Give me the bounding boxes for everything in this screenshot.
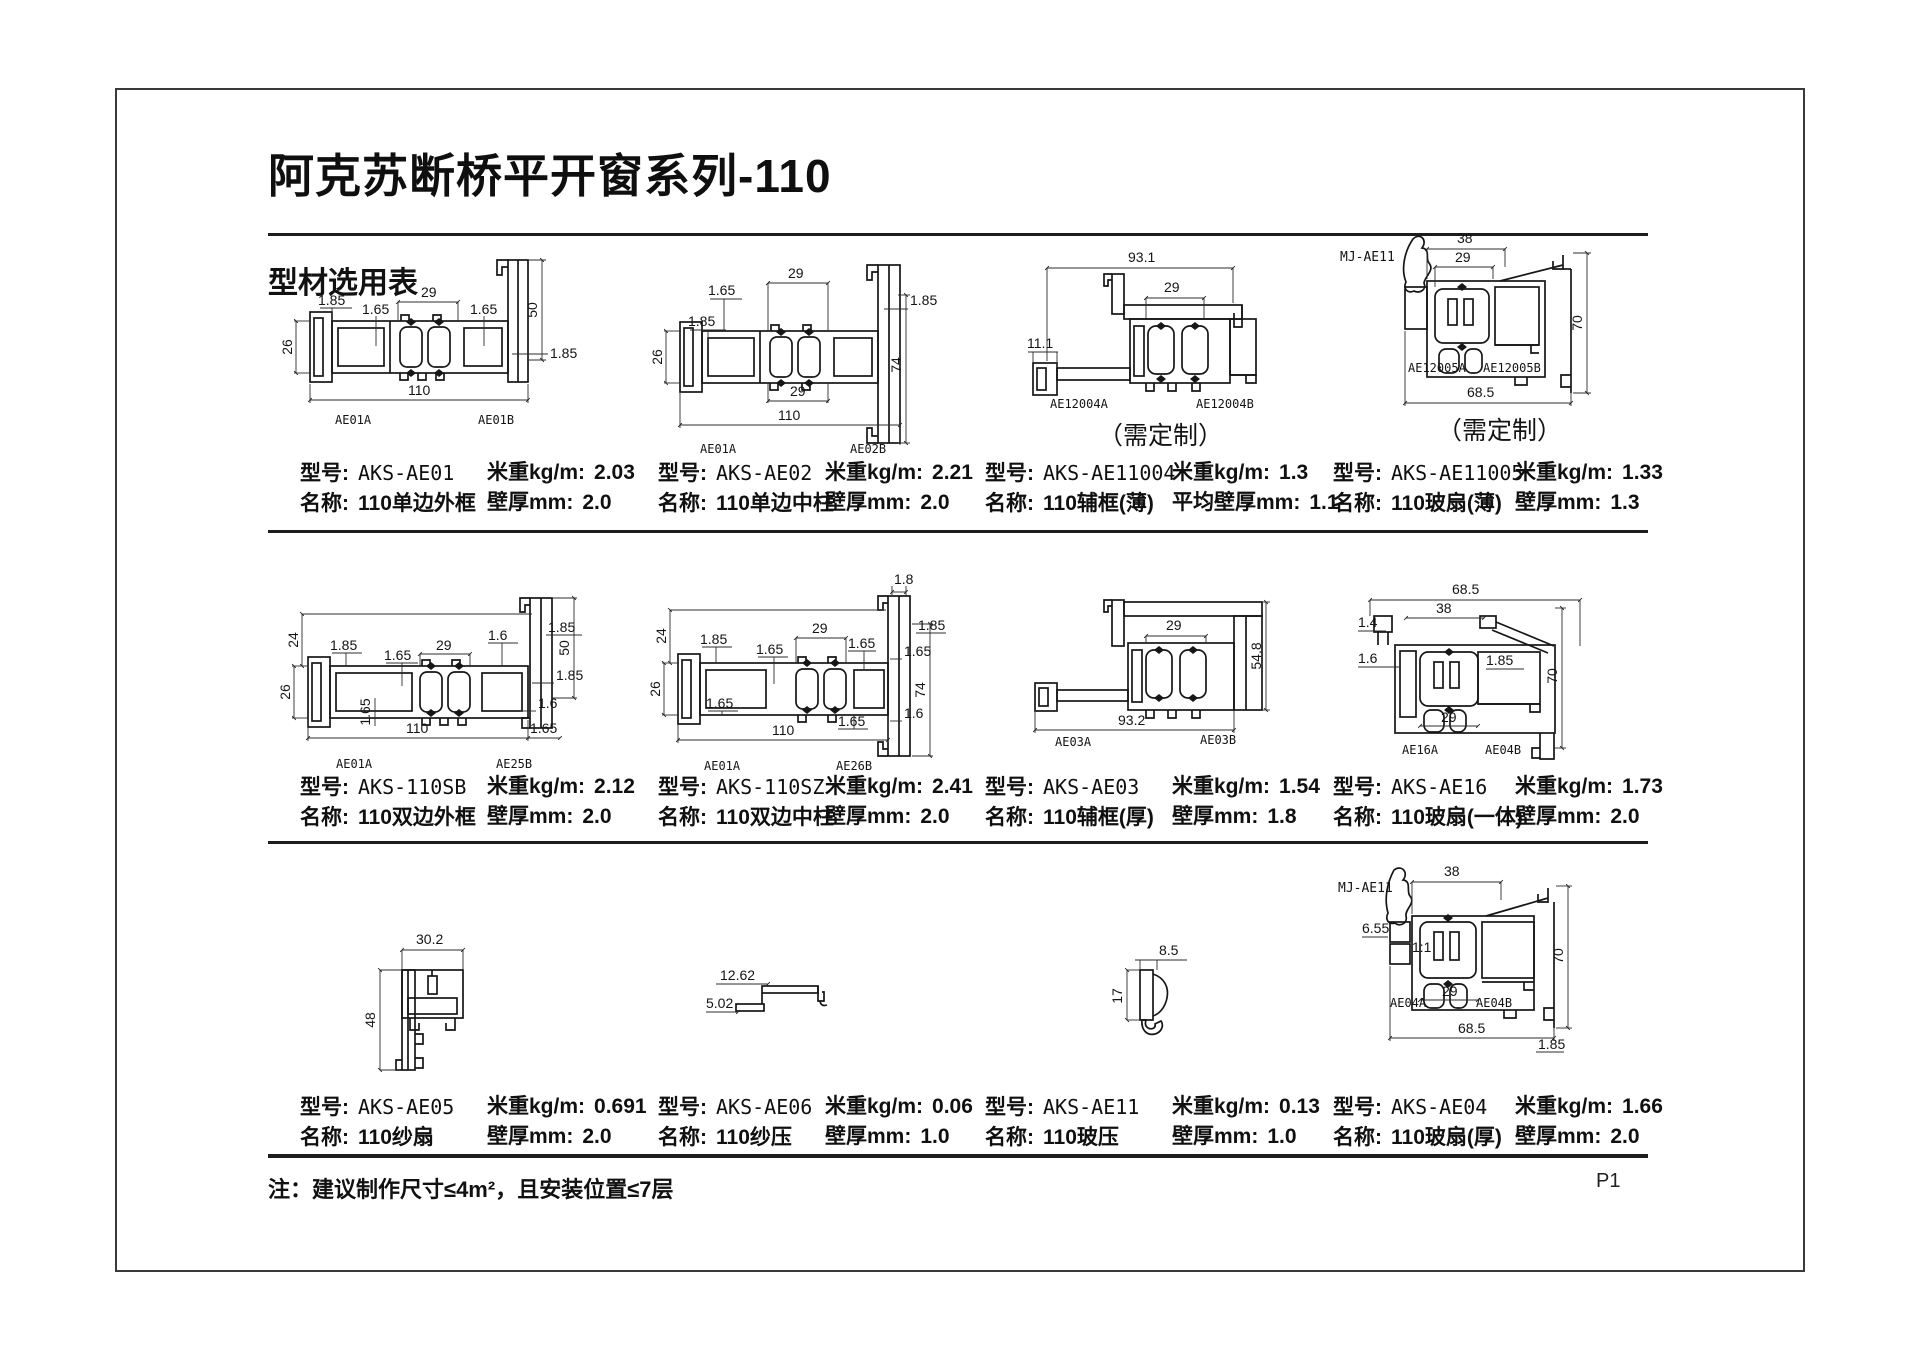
model-value: AKS-AE06 [716,1095,812,1119]
name-label: 名称: [300,806,349,829]
model-value: AKS-AE11 [1043,1095,1139,1119]
weight-label: 米重kg/m: [1515,775,1613,798]
spec-line: 壁厚mm:2.0 [487,1122,647,1152]
part-label: AE12005A [1408,361,1467,375]
part-label: AE01B [478,413,514,427]
weight-label: 米重kg/m: [825,775,923,798]
model-label: 型号: [300,776,349,799]
spec-model-name-ae04: 型号:AKS-AE04 名称:110玻扇(厚) [1333,1092,1502,1153]
thickness-value: 1.0 [920,1125,949,1148]
thickness-value: 2.0 [920,805,949,828]
spec-model-name-ae03: 型号:AKS-AE03 名称:110辅框(厚) [985,772,1154,833]
custom-made-caption: （需定制） [1098,421,1223,450]
spec-line: 型号:AKS-110SB [300,772,476,803]
dim-label: 38 [1444,863,1460,879]
dim-label: 68.5 [1452,581,1479,597]
spec-line: 米重kg/m:2.21 [825,458,973,488]
model-value: AKS-AE05 [358,1095,454,1119]
row-divider-1 [268,530,1648,533]
spec-weight-thickness-ae11004: 米重kg/m:1.3 平均壁厚mm:1.1 [1172,458,1339,518]
dim-label: 50 [524,302,540,318]
spec-line: 名称:110双边中柱 [658,803,834,833]
d im-label: 110 [772,722,795,738]
spec-line: 型号:AKS-AE11005 [1333,458,1523,489]
weight-value: 2.41 [932,775,973,798]
spec-weight-thickness-ae04: 米重kg/m:1.66 壁厚mm:2.0 [1515,1092,1663,1152]
spec-line: 型号:AKS-AE05 [300,1092,454,1123]
name-label: 名称: [1333,492,1382,515]
spec-line: 壁厚mm:2.0 [1515,1122,1663,1152]
corner-label: MJ-AE11 [1338,881,1393,896]
name-value: 110玻扇(厚) [1391,1126,1502,1149]
name-value: 110单边外框 [358,492,476,515]
dim-label: 1.65 [357,698,373,725]
spec-weight-thickness-110sz: 米重kg/m:2.41 壁厚mm:2.0 [825,772,973,832]
thickness-value: 1.8 [1267,805,1296,828]
part-label: AE04B [1476,996,1512,1010]
dim-label: 5.02 [706,995,733,1011]
name-value: 110双边外框 [358,806,476,829]
thickness-label: 壁厚mm: [825,805,911,828]
spec-model-name-ae05: 型号:AKS-AE05 名称:110纱扇 [300,1092,454,1153]
spec-line: 名称:110辅框(薄) [985,489,1175,519]
spec-line: 壁厚mm:1.3 [1515,488,1663,518]
model-label: 型号: [658,462,707,485]
model-label: 型号: [658,776,707,799]
bottom-divider [268,1154,1648,1158]
dim-label: 29 [1442,983,1458,999]
name-value: 110纱扇 [358,1126,434,1149]
model-value: AKS-AE02 [716,461,812,485]
model-value: AKS-AE03 [1043,775,1139,799]
weight-label: 米重kg/m: [487,461,585,484]
spec-line: 型号:AKS-AE03 [985,772,1154,803]
weight-value: 0.13 [1279,1095,1320,1118]
name-label: 名称: [1333,1126,1382,1149]
weight-label: 米重kg/m: [487,775,585,798]
dim-label: 1.85 [548,619,575,635]
name-label: 名称: [1333,806,1382,829]
profile-drawing-aks-ae11004: 93.1 29 11.1 AE12004A AE12004B （需定制） [1000,238,1330,464]
part-label: AE01A [704,759,741,773]
spec-line: 壁厚mm:1.8 [1172,802,1320,832]
dim-label: 1:1 [1412,939,1432,955]
weight-label: 米重kg/m: [1172,775,1270,798]
dim-label: 38 [1457,230,1473,246]
spec-line: 名称:110玻扇(厚) [1333,1123,1502,1153]
name-value: 110单边中柱 [716,492,834,515]
spec-line: 型号:AKS-AE11004 [985,458,1175,489]
dim-label: 68.5 [1458,1020,1485,1036]
spec-line: 米重kg/m:1.66 [1515,1092,1663,1122]
dim-label: 70 [1544,668,1560,684]
weight-value: 2.12 [594,775,635,798]
spec-line: 平均壁厚mm:1.1 [1172,488,1339,518]
name-value: 110纱压 [716,1126,792,1149]
dim-label: 1.4 [1358,614,1378,630]
thickness-label: 壁厚mm: [487,491,573,514]
profile-drawing-aks-ae02: 1.65 29 1.85 1.85 26 29 74 110 AE01A AE0… [650,243,995,471]
model-label: 型号: [300,1096,349,1119]
weight-value: 1.66 [1622,1095,1663,1118]
dim-label: 6.55 [1362,920,1389,936]
spec-model-name-110sb: 型号:AKS-110SB 名称:110双边外框 [300,772,476,833]
dim-label: 1.85 [700,631,727,647]
dim-label: 50 [556,640,572,656]
thickness-label: 壁厚mm: [1515,1125,1601,1148]
profile-drawing-aks-ae06: 12.62 5.02 [660,950,860,1035]
dim-label: 29 [436,637,452,653]
dim-label: 1.65 [838,713,865,729]
spec-line: 壁厚mm:2.0 [487,488,635,518]
dim-label: 70 [1550,948,1566,964]
dim-label: 1.65 [384,647,411,663]
model-value: AKS-110SZ [716,775,824,799]
name-value: 110辅框(薄) [1043,492,1154,515]
spec-line: 壁厚mm:2.0 [825,802,973,832]
thickness-label: 壁厚mm: [1172,805,1258,828]
spec-line: 型号:AKS-AE01 [300,458,476,489]
weight-value: 0.06 [932,1095,973,1118]
corner-label: MJ-AE11 [1340,250,1395,265]
spec-line: 米重kg/m:1.3 [1172,458,1339,488]
part-label: AE25B [496,757,532,771]
thickness-value: 1.0 [1267,1125,1296,1148]
spec-line: 米重kg/m:0.691 [487,1092,647,1122]
spec-line: 型号:AKS-AE06 [658,1092,812,1123]
spec-model-name-ae11005: 型号:AKS-AE11005 名称:110玻扇(薄) [1333,458,1523,519]
spec-line: 名称:110纱压 [658,1123,812,1153]
dim-label: 1.6 [538,695,558,711]
dim-label: 1.85 [330,637,357,653]
spec-weight-thickness-ae02: 米重kg/m:2.21 壁厚mm:2.0 [825,458,973,518]
dim-label: 1.8 [894,572,914,587]
spec-line: 名称:110玻压 [985,1123,1139,1153]
dim-label: 1.65 [470,301,497,317]
spec-line: 名称:110双边外框 [300,803,476,833]
dim-label: 1.65 [708,282,735,298]
thickness-value: 2.0 [920,491,949,514]
weight-value: 2.21 [932,461,973,484]
part-label: AE02B [850,442,886,456]
name-value: 110玻扇(薄) [1391,492,1502,515]
part-label: AE04A [1390,996,1427,1010]
name-label: 名称: [985,1126,1034,1149]
dim-label: 1.6 [488,627,508,643]
dim-label: 74 [912,682,928,698]
spec-model-name-ae01: 型号:AKS-AE01 名称:110单边外框 [300,458,476,519]
spec-line: 壁厚mm:2.0 [487,802,635,832]
model-label: 型号: [1333,462,1382,485]
model-label: 型号: [658,1096,707,1119]
thickness-value: 2.0 [1610,805,1639,828]
spec-line: 型号:AKS-AE11 [985,1092,1139,1123]
model-value: AKS-AE04 [1391,1095,1487,1119]
weight-label: 米重kg/m: [487,1095,585,1118]
dim-label: 1.65 [706,695,733,711]
model-value: AKS-AE11005 [1391,461,1523,485]
dim-label: 1.85 [910,292,937,308]
page-number: P1 [1596,1170,1620,1193]
dim-label: 93.1 [1128,249,1155,265]
dim-label: 74 [888,357,904,373]
weight-label: 米重kg/m: [825,461,923,484]
dim-label: 1.85 [556,667,583,683]
dim-label: 24 [285,632,301,648]
spec-line: 壁厚mm:1.0 [825,1122,973,1152]
part-label: AE26B [836,759,872,773]
name-label: 名称: [300,492,349,515]
page-title: 阿克苏断桥平开窗系列-110 [268,140,832,206]
part-label: AE01A [336,757,373,771]
model-label: 型号: [985,462,1034,485]
thickness-label: 壁厚mm: [825,1125,911,1148]
name-label: 名称: [658,492,707,515]
dim-label: 29 [1441,709,1457,725]
dim-label: 1.65 [756,641,783,657]
dim-label: 11.1 [1027,335,1053,351]
spec-line: 名称:110辅框(厚) [985,803,1154,833]
dim-label: 1.85 [318,292,345,308]
weight-label: 米重kg/m: [1515,1095,1613,1118]
weight-value: 0.691 [594,1095,647,1118]
spec-line: 名称:110单边中柱 [658,489,834,519]
dim-label: 26 [650,349,665,365]
spec-weight-thickness-ae05: 米重kg/m:0.691 壁厚mm:2.0 [487,1092,647,1152]
dim-label: 1.6 [1358,650,1378,666]
spec-model-name-ae11: 型号:AKS-AE11 名称:110玻压 [985,1092,1139,1153]
spec-model-name-ae11004: 型号:AKS-AE11004 名称:110辅框(薄) [985,458,1175,519]
dim-label: 110 [406,720,429,736]
spec-weight-thickness-ae01: 米重kg/m:2.03 壁厚mm:2.0 [487,458,635,518]
dim-label: 29 [788,265,804,281]
spec-line: 型号:AKS-AE04 [1333,1092,1502,1123]
dim-label: 1.85 [550,345,577,361]
dim-label: 54.8 [1248,642,1264,669]
spec-line: 壁厚mm:1.0 [1172,1122,1320,1152]
dim-label: 1.65 [904,643,931,659]
weight-value: 1.33 [1622,461,1663,484]
weight-value: 1.54 [1279,775,1320,798]
spec-weight-thickness-ae06: 米重kg/m:0.06 壁厚mm:1.0 [825,1092,973,1152]
spec-line: 型号:AKS-110SZ [658,772,834,803]
spec-line: 米重kg/m:1.73 [1515,772,1663,802]
thickness-label: 壁厚mm: [1515,805,1601,828]
thickness-value: 1.3 [1610,491,1639,514]
model-value: AKS-AE16 [1391,775,1487,799]
profile-drawing-aks-ae05: 30.2 48 [330,918,560,1103]
spec-weight-thickness-110sb: 米重kg/m:2.12 壁厚mm:2.0 [487,772,635,832]
row-divider-2 [268,841,1648,844]
weight-value: 2.03 [594,461,635,484]
profile-drawing-aks-110sb: 24 1.85 1.65 29 1.6 1.85 50 1.85 1.6 26 … [280,578,625,790]
part-label: AE12005B [1483,361,1541,375]
thickness-label: 壁厚mm: [1172,1125,1258,1148]
thickness-value: 2.0 [1610,1125,1639,1148]
spec-line: 米重kg/m:2.12 [487,772,635,802]
dim-label: 1.65 [530,720,557,736]
spec-line: 米重kg/m:2.03 [487,458,635,488]
spec-line: 名称:110玻扇(薄) [1333,489,1523,519]
footnote: 注：建议制作尺寸≤4m²，且安装位置≤7层 [268,1172,674,1204]
dim-label: 110 [778,407,801,423]
dim-label: 17 [1109,988,1125,1004]
dim-label: 26 [280,339,295,355]
thickness-value: 2.0 [582,805,611,828]
spec-line: 型号:AKS-AE02 [658,458,834,489]
dim-label: 1.65 [362,301,389,317]
dim-label: 26 [280,684,293,700]
dim-label: 110 [408,382,431,398]
name-value: 110双边中柱 [716,806,834,829]
model-label: 型号: [1333,776,1382,799]
part-label: AE12004B [1196,397,1254,411]
thickness-label: 平均壁厚mm: [1172,491,1300,514]
weight-label: 米重kg/m: [1515,461,1613,484]
dim-label: 1.85 [1486,652,1513,668]
model-label: 型号: [300,462,349,485]
dim-label: 48 [362,1012,378,1028]
thickness-label: 壁厚mm: [825,491,911,514]
model-value: AKS-AE11004 [1043,461,1175,485]
weight-label: 米重kg/m: [1172,1095,1270,1118]
part-label: AE16A [1402,743,1439,757]
custom-made-caption: （需定制） [1437,416,1562,445]
dim-label: 38 [1436,600,1452,616]
spec-weight-thickness-ae11005: 米重kg/m:1.33 壁厚mm:1.3 [1515,458,1663,518]
weight-value: 1.73 [1622,775,1663,798]
dim-label: 29 [421,284,437,300]
profile-drawing-aks-ae01: 1.85 1.65 29 1.65 50 1.85 26 110 AE01A A… [280,248,625,463]
spec-model-name-ae16: 型号:AKS-AE16 名称:110玻扇(一体) [1333,772,1523,833]
spec-line: 米重kg/m:0.13 [1172,1092,1320,1122]
spec-model-name-110sz: 型号:AKS-110SZ 名称:110双边中柱 [658,772,834,833]
spec-line: 名称:110纱扇 [300,1123,454,1153]
profile-drawing-aks-ae04: MJ-AE11 38 6.55 1:1 29 70 68.5 1.85 AE04… [1318,858,1648,1066]
part-label: AE03B [1200,733,1236,747]
dim-label: 29 [812,620,828,636]
name-value: 110玻压 [1043,1126,1119,1149]
spec-line: 型号:AKS-AE16 [1333,772,1523,803]
name-label: 名称: [300,1126,349,1149]
name-label: 名称: [985,492,1034,515]
dim-label: 24 [653,628,669,644]
model-value: AKS-110SB [358,775,466,799]
thickness-label: 壁厚mm: [487,1125,573,1148]
name-label: 名称: [658,806,707,829]
part-label: AE01A [335,413,372,427]
name-label: 名称: [985,806,1034,829]
spec-line: 名称:110玻扇(一体) [1333,803,1523,833]
profile-drawing-aks-ae03: 29 54.8 93.2 AE03A AE03B [1000,578,1340,773]
name-value: 110辅框(厚) [1043,806,1154,829]
part-label: AE03A [1055,735,1092,749]
spec-weight-thickness-ae16: 米重kg/m:1.73 壁厚mm:2.0 [1515,772,1663,832]
spec-model-name-ae06: 型号:AKS-AE06 名称:110纱压 [658,1092,812,1153]
spec-line: 米重kg/m:1.33 [1515,458,1663,488]
dim-label: 68.5 [1467,384,1494,400]
weight-value: 1.3 [1279,461,1308,484]
thickness-label: 壁厚mm: [487,805,573,828]
profile-drawing-aks-110sz: 1.8 24 1.85 1.65 29 1.65 1.85 1.65 26 1.… [650,572,995,790]
model-value: AKS-AE01 [358,461,454,485]
thickness-label: 壁厚mm: [1515,491,1601,514]
dim-label: 1.85 [1538,1036,1565,1052]
thickness-value: 2.0 [582,1125,611,1148]
profile-drawing-aks-ae11005: MJ-AE11 38 29 70 68.5 AE12005A AE12005B … [1335,225,1665,457]
weight-label: 米重kg/m: [1172,461,1270,484]
dim-label: 29 [1164,279,1180,295]
dim-label: 29 [790,383,806,399]
dim-label: 29 [1166,617,1182,633]
part-label: AE01A [700,442,737,456]
spec-line: 米重kg/m:2.41 [825,772,973,802]
dim-label: 26 [650,681,663,697]
spec-line: 壁厚mm:2.0 [1515,802,1663,832]
profile-drawing-aks-ae16: 68.5 38 1.4 1.6 1.85 70 29 AE16A AE04B [1340,568,1670,780]
dim-label: 8.5 [1159,942,1179,958]
dim-label: 70 [1569,315,1585,331]
catalog-page: 阿克苏断桥平开窗系列-110 型材选用表 [0,0,1920,1358]
spec-weight-thickness-ae11: 米重kg/m:0.13 壁厚mm:1.0 [1172,1092,1320,1152]
spec-model-name-ae02: 型号:AKS-AE02 名称:110单边中柱 [658,458,834,519]
profile-drawing-aks-ae11: 8.5 17 [1095,928,1255,1053]
dim-label: 93.2 [1118,712,1145,728]
dim-label: 1.6 [904,705,924,721]
dim-label: 12.62 [720,967,755,983]
model-label: 型号: [1333,1096,1382,1119]
model-label: 型号: [985,1096,1034,1119]
spec-line: 米重kg/m:1.54 [1172,772,1320,802]
dim-label: 30.2 [416,931,443,947]
thickness-value: 2.0 [582,491,611,514]
model-label: 型号: [985,776,1034,799]
name-label: 名称: [658,1126,707,1149]
spec-line: 壁厚mm:2.0 [825,488,973,518]
spec-line: 名称:110单边外框 [300,489,476,519]
spec-line: 米重kg/m:0.06 [825,1092,973,1122]
dim-label: 29 [1455,249,1471,265]
name-value: 110玻扇(一体) [1391,806,1523,829]
dim-label: 1.85 [688,313,715,329]
weight-label: 米重kg/m: [825,1095,923,1118]
spec-weight-thickness-ae03: 米重kg/m:1.54 壁厚mm:1.8 [1172,772,1320,832]
part-label: AE04B [1485,743,1521,757]
dim-label: 1.65 [848,635,875,651]
part-label: AE12004A [1050,397,1109,411]
dim-label: 1.85 [918,617,945,633]
